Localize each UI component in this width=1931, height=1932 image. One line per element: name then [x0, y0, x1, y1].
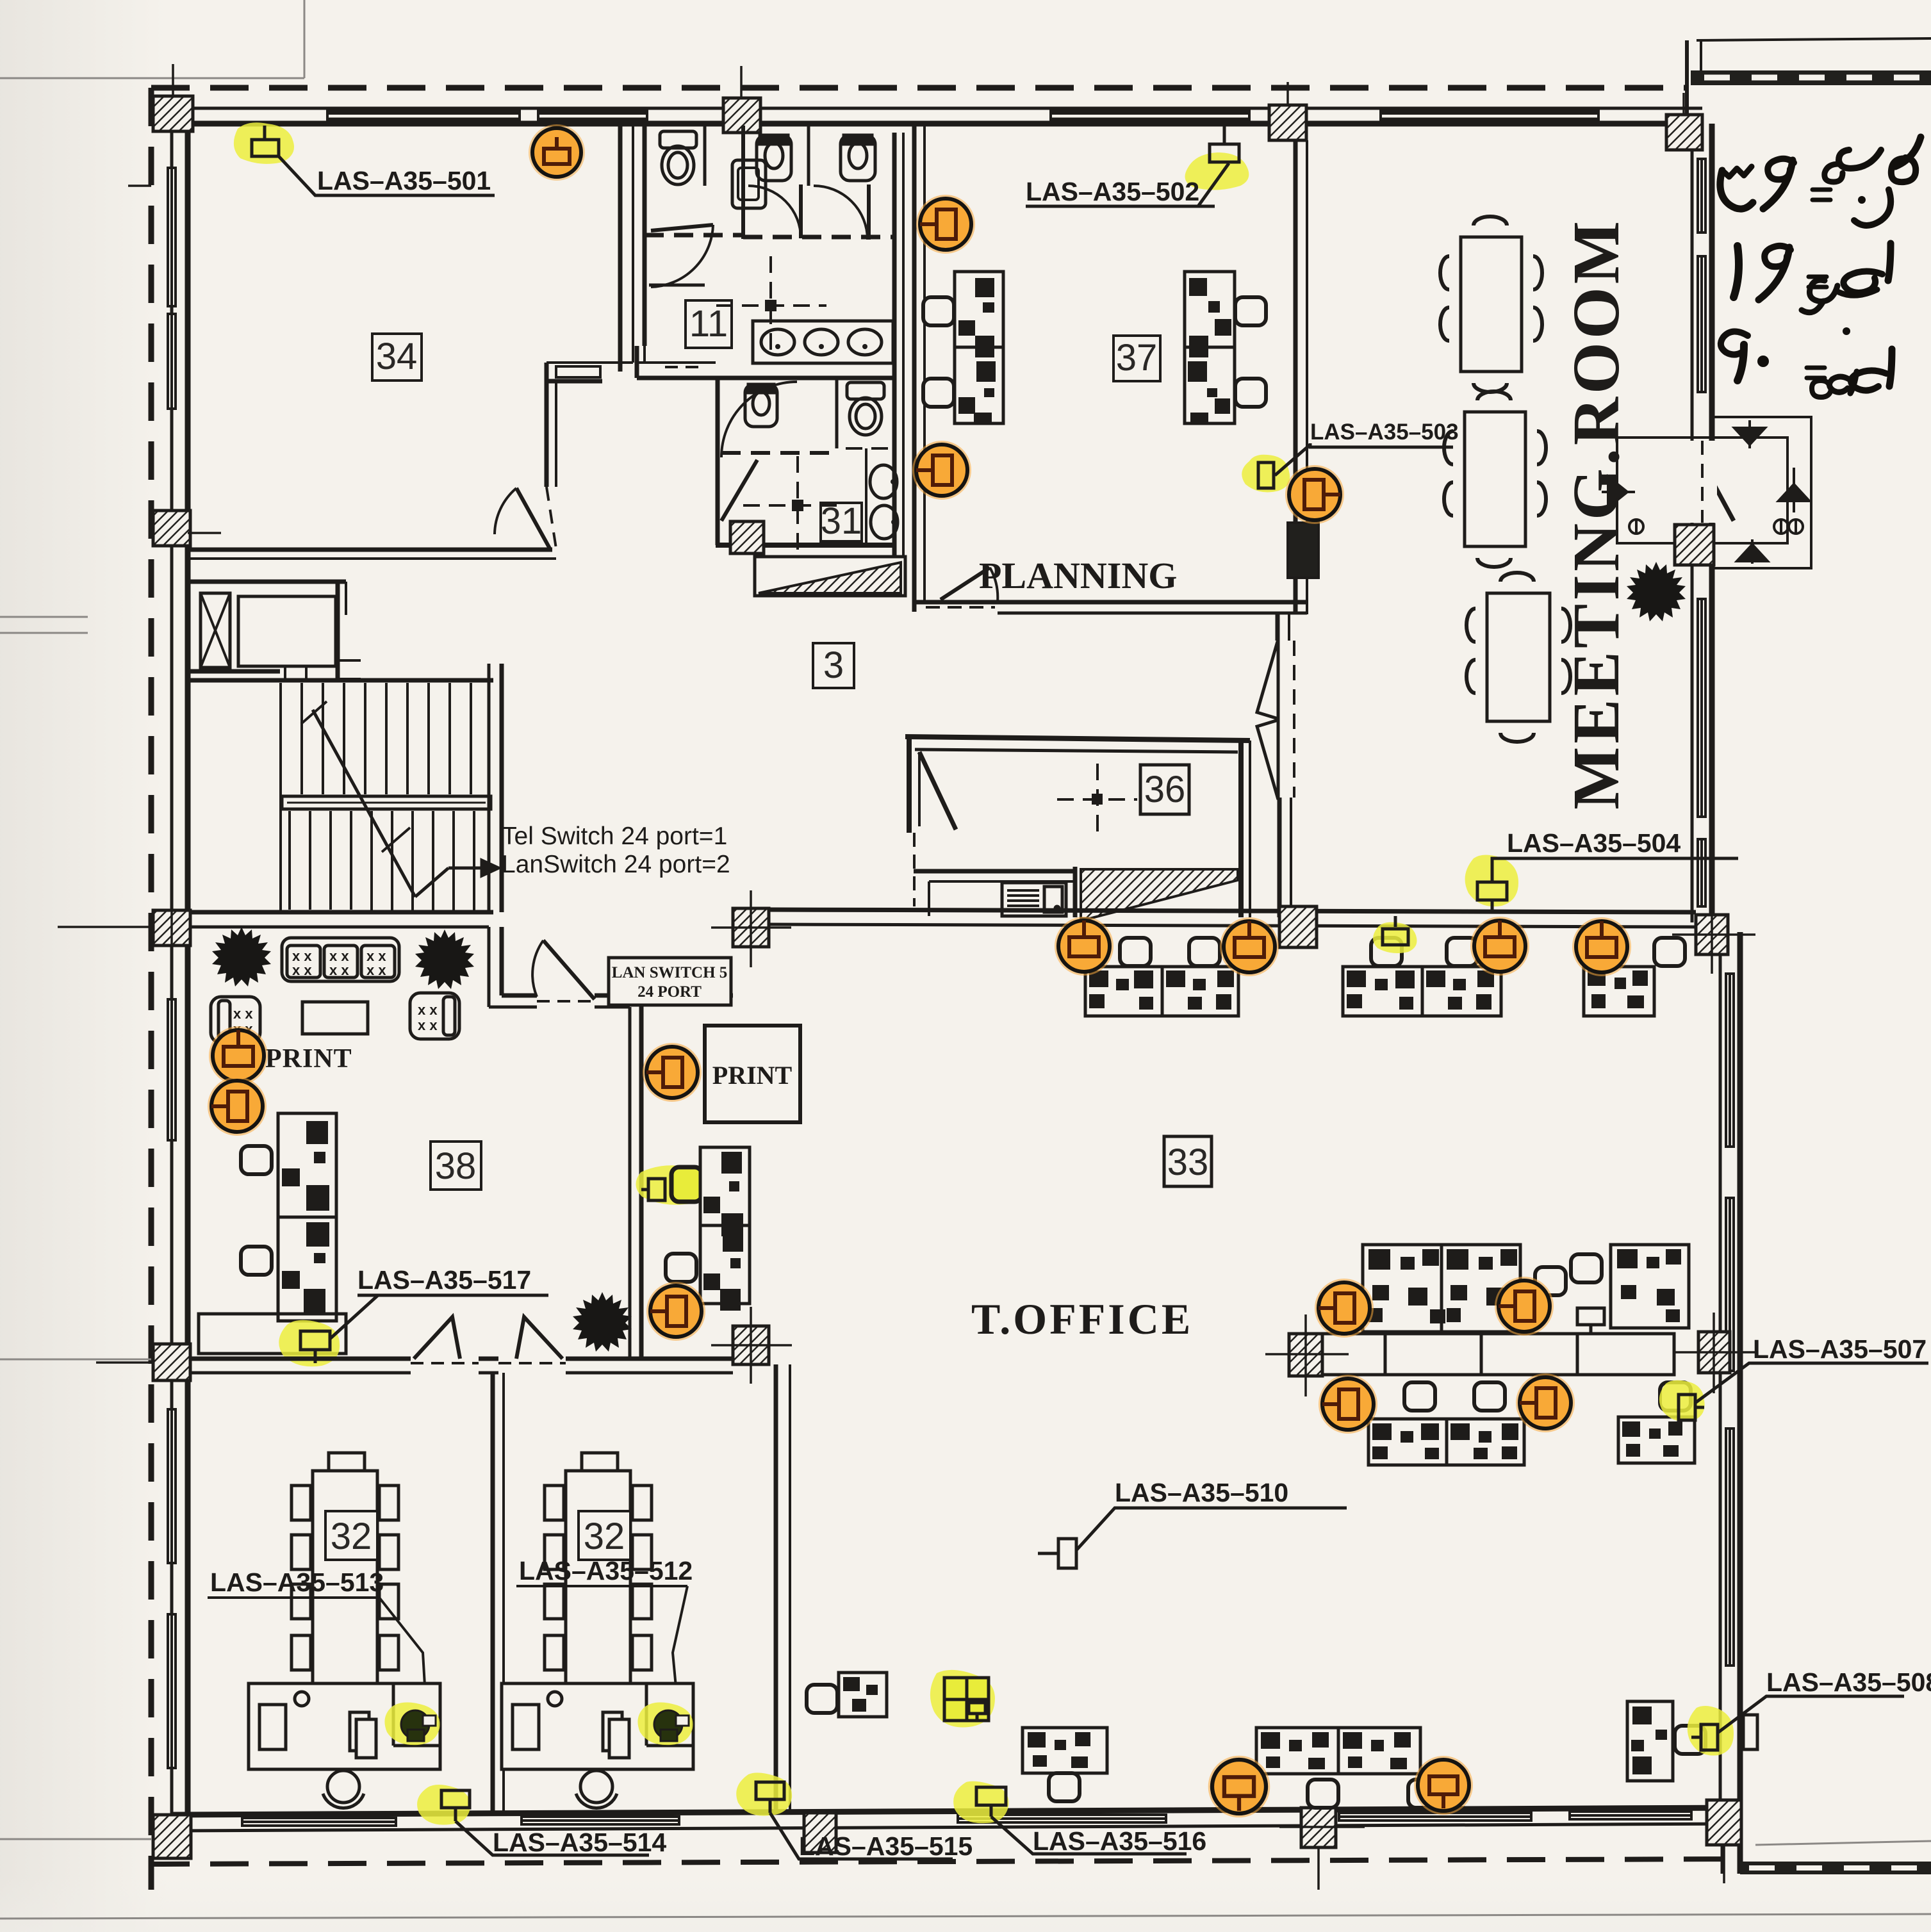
- svg-text:LAS–A35–501: LAS–A35–501: [317, 166, 491, 195]
- svg-text:LAS–A35–515: LAS–A35–515: [799, 1831, 973, 1861]
- svg-text:LAS–A35–516: LAS–A35–516: [1033, 1826, 1206, 1856]
- svg-text:Tel Switch 24 port=1: Tel Switch 24 port=1: [502, 823, 727, 850]
- svg-text:3: 3: [823, 644, 844, 686]
- svg-text:LAS–A35–504: LAS–A35–504: [1507, 828, 1680, 858]
- svg-text:34: 34: [376, 336, 418, 377]
- svg-text:11: 11: [689, 303, 728, 345]
- svg-text:PRINT: PRINT: [712, 1061, 793, 1090]
- svg-text:LAS–A35–507: LAS–A35–507: [1753, 1334, 1927, 1364]
- svg-text:33: 33: [1167, 1142, 1209, 1183]
- svg-text:LAS–A35–510: LAS–A35–510: [1115, 1478, 1288, 1507]
- svg-text:x x: x x: [292, 962, 312, 978]
- svg-text:LAS–A35–513: LAS–A35–513: [210, 1568, 384, 1597]
- svg-text:LAS–A35–517: LAS–A35–517: [357, 1265, 531, 1295]
- svg-text:LAS–A35–512: LAS–A35–512: [519, 1556, 693, 1585]
- svg-text:LAS–A35–514: LAS–A35–514: [493, 1828, 666, 1857]
- svg-text:x x: x x: [418, 1017, 438, 1033]
- svg-text:36: 36: [1144, 769, 1186, 810]
- svg-text:38: 38: [435, 1145, 477, 1187]
- svg-text:32: 32: [331, 1516, 372, 1557]
- svg-text:LAN SWITCH 5: LAN SWITCH 5: [612, 964, 728, 981]
- svg-text:x x: x x: [366, 962, 386, 978]
- svg-text:T.OFFICE: T.OFFICE: [971, 1295, 1193, 1343]
- svg-text:24 PORT: 24 PORT: [637, 983, 702, 1001]
- svg-text:x x: x x: [418, 1002, 438, 1018]
- svg-text:LAS–A35–503: LAS–A35–503: [1310, 420, 1459, 445]
- svg-text:37: 37: [1116, 337, 1158, 379]
- svg-text:MEETING.ROOM: MEETING.ROOM: [1559, 218, 1633, 810]
- svg-text:32: 32: [584, 1516, 625, 1557]
- svg-text:LanSwitch 24 port=2: LanSwitch 24 port=2: [502, 851, 730, 878]
- svg-text:31: 31: [821, 500, 862, 542]
- svg-text:PLANNING: PLANNING: [979, 555, 1177, 596]
- svg-text:LAS–A35–502: LAS–A35–502: [1026, 177, 1199, 206]
- svg-text:PRINT: PRINT: [265, 1044, 352, 1074]
- svg-text:x x: x x: [233, 1006, 253, 1022]
- svg-text:x x: x x: [329, 962, 349, 978]
- svg-text:LAS–A35–508: LAS–A35–508: [1766, 1667, 1931, 1697]
